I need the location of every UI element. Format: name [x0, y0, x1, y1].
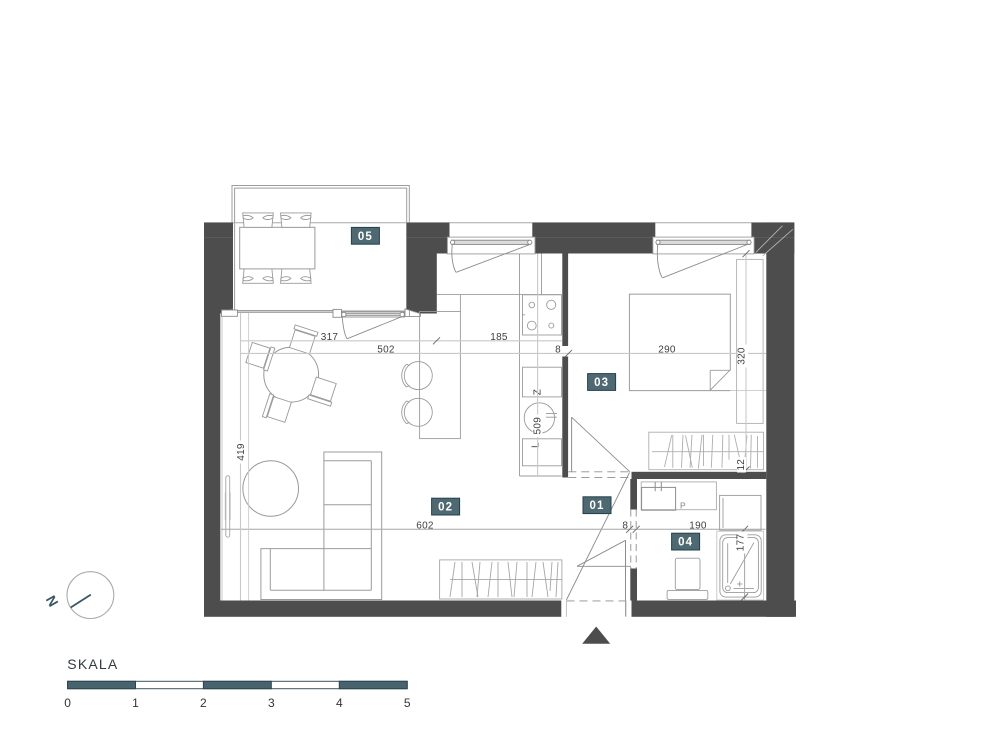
svg-text:8: 8	[622, 520, 628, 531]
svg-text:12: 12	[736, 459, 747, 471]
svg-text:01: 01	[590, 500, 605, 512]
svg-text:602: 602	[416, 520, 434, 531]
svg-text:3: 3	[268, 696, 275, 710]
svg-text:L: L	[531, 442, 542, 448]
svg-text:317: 317	[321, 332, 339, 343]
svg-text:419: 419	[236, 443, 247, 461]
svg-text:02: 02	[438, 502, 453, 514]
svg-text:509: 509	[533, 417, 544, 435]
svg-text:0: 0	[64, 696, 71, 710]
svg-text:04: 04	[678, 537, 693, 549]
svg-text:2: 2	[200, 696, 207, 710]
svg-text:1: 1	[132, 696, 139, 710]
svg-text:05: 05	[358, 231, 373, 243]
svg-text:SKALA: SKALA	[67, 656, 118, 672]
svg-text:8: 8	[555, 344, 561, 355]
svg-text:320: 320	[737, 347, 748, 365]
svg-text:290: 290	[658, 344, 676, 355]
svg-text:5: 5	[404, 696, 411, 710]
svg-text:502: 502	[377, 344, 395, 355]
svg-text:4: 4	[336, 696, 343, 710]
svg-text:P: P	[680, 500, 686, 510]
svg-text:177: 177	[736, 534, 747, 552]
svg-text:190: 190	[689, 520, 707, 531]
svg-text:03: 03	[594, 377, 609, 389]
svg-text:185: 185	[490, 332, 508, 343]
